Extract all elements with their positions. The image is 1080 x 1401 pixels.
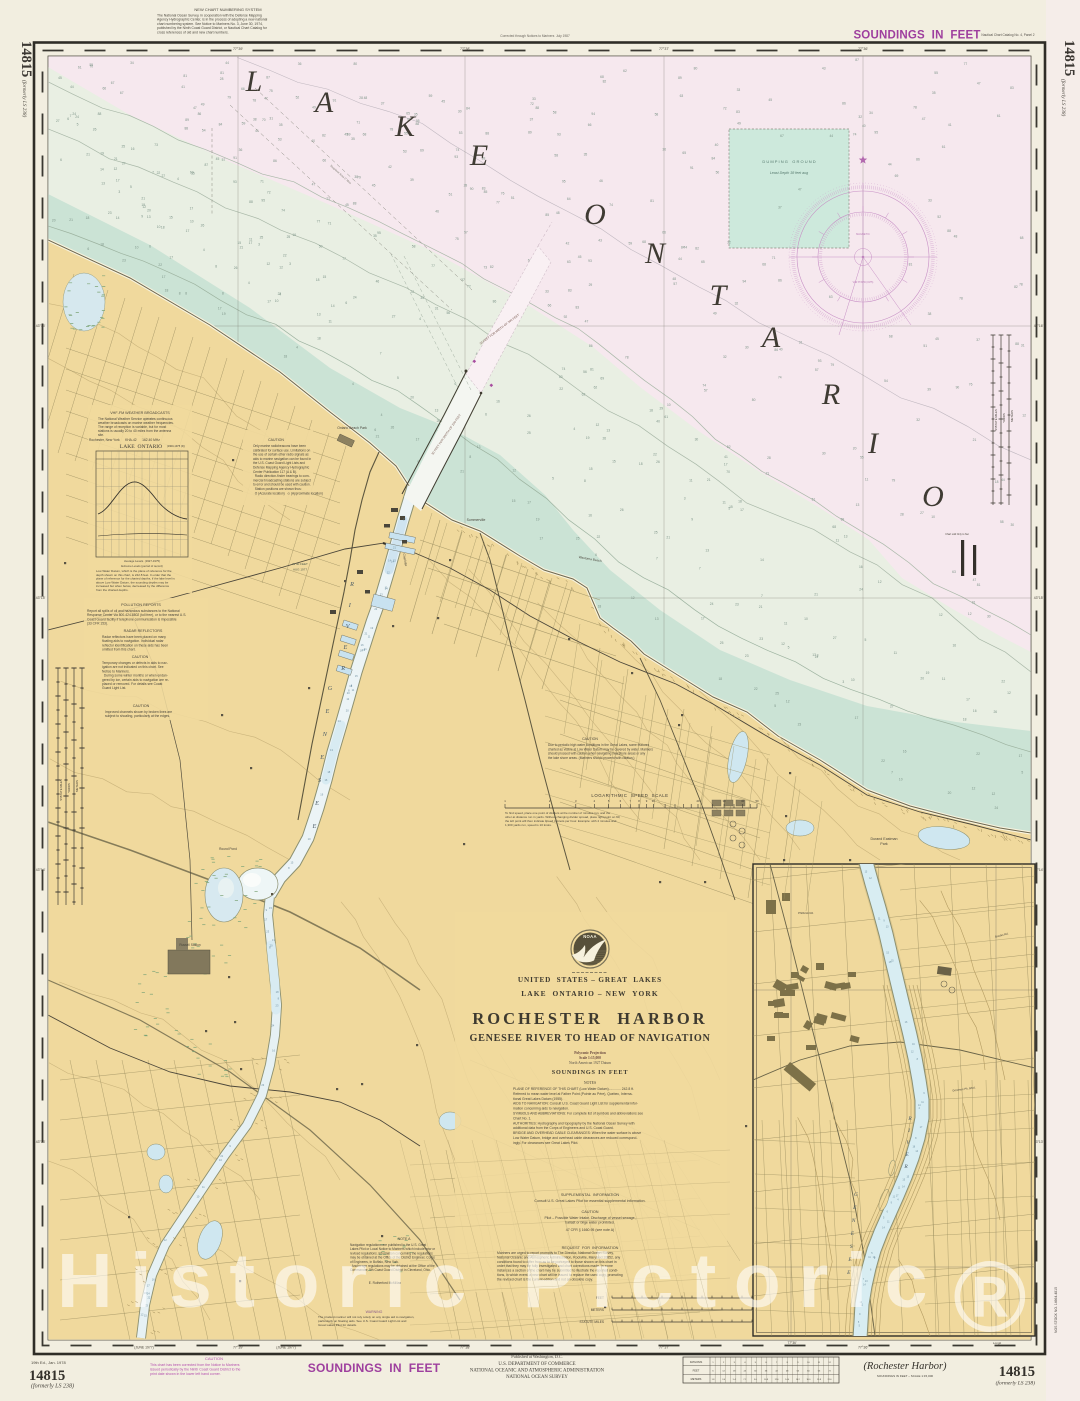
svg-text:43: 43 xyxy=(598,238,602,242)
svg-text:85: 85 xyxy=(545,213,549,217)
svg-text:91: 91 xyxy=(690,166,694,170)
svg-text:44: 44 xyxy=(70,85,74,89)
svg-text:22: 22 xyxy=(283,254,287,258)
svg-text:6: 6 xyxy=(454,382,456,386)
svg-text:88: 88 xyxy=(947,229,951,233)
svg-text:Low Water Datum, bridge and ov: Low Water Datum, bridge and overhead cab… xyxy=(513,1136,637,1140)
svg-text:12: 12 xyxy=(631,596,635,600)
svg-text:74: 74 xyxy=(281,208,285,212)
svg-text:83: 83 xyxy=(568,288,572,292)
svg-text:17: 17 xyxy=(267,299,271,303)
svg-text:68: 68 xyxy=(889,335,893,339)
svg-text:25: 25 xyxy=(260,235,264,239)
svg-text:14815: 14815 xyxy=(29,1368,65,1384)
svg-text:SYMBOLS AND ABBREVIATIONS: For: SYMBOLS AND ABBREVIATIONS: For complete … xyxy=(513,1112,643,1116)
svg-text:76: 76 xyxy=(969,382,973,386)
svg-text:78: 78 xyxy=(913,106,917,110)
svg-text:17: 17 xyxy=(724,462,728,466)
svg-text:44: 44 xyxy=(678,257,682,261)
svg-text:37: 37 xyxy=(530,118,534,122)
svg-text:15: 15 xyxy=(589,467,593,471)
svg-text:94: 94 xyxy=(591,112,595,116)
svg-text:22: 22 xyxy=(653,452,657,456)
svg-text:31: 31 xyxy=(435,307,439,311)
svg-text:87: 87 xyxy=(855,58,859,62)
svg-text:31: 31 xyxy=(1021,343,1025,347)
svg-text:26: 26 xyxy=(602,437,606,441)
svg-text:33: 33 xyxy=(532,97,536,101)
svg-text:27: 27 xyxy=(161,174,165,178)
svg-text:90: 90 xyxy=(956,386,960,390)
svg-text:32: 32 xyxy=(916,418,920,422)
svg-text:11: 11 xyxy=(722,501,726,505)
svg-text:86: 86 xyxy=(589,344,593,348)
svg-text:47: 47 xyxy=(977,82,981,86)
svg-text:18: 18 xyxy=(718,677,722,681)
svg-text:86: 86 xyxy=(778,278,782,282)
svg-text:18: 18 xyxy=(639,462,643,466)
svg-text:issued periodically by the Nin: issued periodically by the Ninth Coast G… xyxy=(150,1367,241,1371)
svg-text:87: 87 xyxy=(266,76,270,80)
svg-text:17: 17 xyxy=(701,617,705,621)
svg-text:26: 26 xyxy=(993,710,997,714)
svg-text:21: 21 xyxy=(141,197,145,201)
svg-text:14: 14 xyxy=(116,216,120,220)
svg-text:E: E xyxy=(852,1205,857,1211)
svg-text:17: 17 xyxy=(416,438,420,442)
svg-text:8: 8 xyxy=(179,291,181,295)
svg-text:U.S. DEPARTMENT OF COMMERCE: U.S. DEPARTMENT OF COMMERCE xyxy=(498,1362,575,1367)
svg-text:35: 35 xyxy=(584,153,588,157)
svg-text:66: 66 xyxy=(241,87,245,91)
svg-text:from the charted depths.: from the charted depths. xyxy=(96,588,129,592)
svg-text:12: 12 xyxy=(992,792,996,796)
svg-text:77°39': 77°39' xyxy=(233,47,243,51)
svg-text:82: 82 xyxy=(322,134,326,138)
svg-text:33: 33 xyxy=(545,290,549,294)
svg-text:ROCHESTER HARBOR: ROCHESTER HARBOR xyxy=(472,1009,707,1028)
svg-text:86: 86 xyxy=(198,112,202,116)
svg-text:24: 24 xyxy=(72,112,76,116)
svg-text:42: 42 xyxy=(388,165,392,169)
svg-text:95: 95 xyxy=(874,130,878,134)
svg-text:63: 63 xyxy=(952,570,956,574)
svg-text:(1900-1975 (F)): (1900-1975 (F)) xyxy=(167,444,185,448)
svg-text:(formerly LS 238): (formerly LS 238) xyxy=(21,80,28,117)
svg-text:84: 84 xyxy=(466,107,470,111)
svg-text:73: 73 xyxy=(483,266,487,270)
svg-text:45: 45 xyxy=(768,98,772,102)
svg-text:16: 16 xyxy=(131,147,135,151)
svg-text:80: 80 xyxy=(752,398,756,402)
svg-text:13: 13 xyxy=(655,617,659,621)
svg-text:17: 17 xyxy=(169,256,173,260)
svg-text:35: 35 xyxy=(932,91,936,95)
svg-text:23: 23 xyxy=(108,211,112,215)
svg-text:6: 6 xyxy=(87,247,89,251)
svg-text:66: 66 xyxy=(102,87,106,91)
svg-text:19: 19 xyxy=(926,671,930,675)
svg-text:18: 18 xyxy=(995,480,999,484)
svg-text:3: 3 xyxy=(817,654,819,658)
svg-text:NOS STOCK NO. 14664-4815: NOS STOCK NO. 14664-4815 xyxy=(1054,1287,1058,1333)
svg-text:74: 74 xyxy=(778,376,782,380)
svg-text:81: 81 xyxy=(650,199,654,203)
svg-text:Consult U.S. Great Lakes Pilot: Consult U.S. Great Lakes Pilot for essen… xyxy=(534,1199,645,1203)
svg-text:MAGNETIC: MAGNETIC xyxy=(856,232,870,236)
svg-text:T: T xyxy=(710,279,729,312)
svg-text:14: 14 xyxy=(331,304,335,308)
svg-text:77°36': 77°36' xyxy=(858,47,868,51)
svg-text:30: 30 xyxy=(1010,523,1014,527)
svg-text:A: A xyxy=(760,321,781,354)
svg-text:83: 83 xyxy=(1010,86,1014,90)
svg-text:6: 6 xyxy=(60,158,62,162)
svg-text:15: 15 xyxy=(169,215,173,219)
svg-text:38: 38 xyxy=(928,312,932,316)
svg-text:78: 78 xyxy=(959,296,963,300)
svg-text:47: 47 xyxy=(798,188,802,192)
svg-text:45: 45 xyxy=(578,255,582,259)
svg-text:Nautical Chart Catalog No. 4,: Nautical Chart Catalog No. 4, Panel 2 xyxy=(981,33,1034,37)
svg-text:28: 28 xyxy=(767,456,771,460)
svg-text:24: 24 xyxy=(353,295,357,299)
svg-text:77: 77 xyxy=(496,200,500,204)
svg-text:28: 28 xyxy=(464,184,468,188)
svg-text:12: 12 xyxy=(279,266,283,270)
svg-text:41: 41 xyxy=(724,455,728,459)
svg-text:28: 28 xyxy=(220,77,224,81)
svg-text:4: 4 xyxy=(573,427,575,431)
svg-text:32: 32 xyxy=(727,240,731,244)
svg-text:18: 18 xyxy=(316,278,320,282)
svg-text:27: 27 xyxy=(392,314,396,318)
svg-text:59: 59 xyxy=(628,242,632,246)
svg-text:58: 58 xyxy=(553,111,557,115)
svg-text:18: 18 xyxy=(100,243,104,247)
svg-text:5: 5 xyxy=(130,185,132,189)
svg-text:4: 4 xyxy=(381,413,383,417)
svg-text:30: 30 xyxy=(723,799,727,803)
svg-text:79: 79 xyxy=(227,96,231,100)
svg-text:68: 68 xyxy=(1020,236,1024,240)
svg-text:25: 25 xyxy=(527,431,531,435)
svg-text:14815: 14815 xyxy=(999,1364,1035,1380)
svg-text:30: 30 xyxy=(695,437,699,441)
svg-text:71: 71 xyxy=(328,222,332,226)
svg-text:75: 75 xyxy=(455,237,459,241)
svg-text:7: 7 xyxy=(891,770,893,774)
svg-text:16: 16 xyxy=(496,400,500,404)
svg-text:12: 12 xyxy=(939,613,943,617)
svg-text:5: 5 xyxy=(77,123,79,127)
svg-text:IN 40 FEET: IN 40 FEET xyxy=(292,562,308,566)
svg-text:77: 77 xyxy=(431,264,435,268)
svg-text:27: 27 xyxy=(122,161,126,165)
svg-text:3: 3 xyxy=(842,680,844,684)
svg-text:E: E xyxy=(312,823,317,830)
svg-text:29: 29 xyxy=(659,406,663,410)
svg-text:AUG 1977: AUG 1977 xyxy=(293,568,307,572)
svg-text:7: 7 xyxy=(699,567,701,571)
svg-text:77°38': 77°38' xyxy=(460,47,470,51)
svg-text:10: 10 xyxy=(667,403,671,407)
svg-text:68: 68 xyxy=(762,262,766,266)
svg-text:12: 12 xyxy=(786,700,790,704)
svg-text:77: 77 xyxy=(317,220,321,224)
svg-text:20: 20 xyxy=(410,396,414,400)
svg-text:69: 69 xyxy=(841,517,845,521)
svg-text:5: 5 xyxy=(864,638,866,642)
svg-text:(33 CFR 153).: (33 CFR 153). xyxy=(87,622,108,626)
svg-text:52: 52 xyxy=(296,95,300,99)
svg-text:25: 25 xyxy=(720,641,724,645)
svg-text:12: 12 xyxy=(266,262,270,266)
svg-text:36: 36 xyxy=(662,147,666,151)
svg-text:Polyconic Projection: Polyconic Projection xyxy=(574,1051,606,1055)
svg-text:74: 74 xyxy=(853,132,857,136)
svg-text:22: 22 xyxy=(597,535,601,539)
svg-text:15: 15 xyxy=(729,505,733,509)
svg-text:17: 17 xyxy=(966,698,970,702)
svg-text:88: 88 xyxy=(353,202,357,206)
svg-text:11: 11 xyxy=(836,539,840,543)
svg-text:58: 58 xyxy=(655,112,659,116)
svg-text:METERS: METERS xyxy=(691,1377,702,1381)
svg-text:21: 21 xyxy=(376,434,380,438)
svg-text:(formerly LS 238): (formerly LS 238) xyxy=(31,1383,74,1390)
svg-text:14: 14 xyxy=(760,558,764,562)
svg-text:72: 72 xyxy=(267,191,271,195)
svg-text:22: 22 xyxy=(158,263,162,267)
svg-text:61: 61 xyxy=(78,66,82,70)
svg-text:N: N xyxy=(851,1218,856,1224)
svg-text:12: 12 xyxy=(512,468,516,472)
svg-text:SOUNDINGS IN FEET: SOUNDINGS IN FEET xyxy=(853,30,980,42)
svg-text:63: 63 xyxy=(829,295,833,299)
svg-text:print date shown in the lower: print date shown in the lower left hand … xyxy=(150,1372,221,1376)
svg-text:Pilot – Possible Water Intake.: Pilot – Possible Water Intake. Discharge… xyxy=(544,1216,635,1220)
svg-text:Corrected through Notices to M: Corrected through Notices to Mariners Ju… xyxy=(500,34,570,38)
svg-text:78: 78 xyxy=(1019,282,1023,286)
svg-text:16: 16 xyxy=(952,643,956,647)
svg-text:13: 13 xyxy=(812,653,816,657)
svg-text:47: 47 xyxy=(973,578,977,582)
svg-text:24: 24 xyxy=(859,588,863,592)
svg-text:46: 46 xyxy=(599,179,603,183)
svg-text:38: 38 xyxy=(354,175,358,179)
svg-text:86: 86 xyxy=(842,102,846,106)
svg-text:9: 9 xyxy=(691,517,693,521)
svg-text:59: 59 xyxy=(242,121,246,125)
svg-text:22: 22 xyxy=(278,292,282,296)
svg-text:37: 37 xyxy=(976,338,980,342)
svg-text:69: 69 xyxy=(600,377,604,381)
svg-text:Russell Station: Russell Station xyxy=(179,943,200,947)
svg-text:24: 24 xyxy=(710,602,714,606)
svg-text:45: 45 xyxy=(345,203,349,207)
svg-text:63: 63 xyxy=(680,94,684,98)
svg-text:95: 95 xyxy=(261,199,265,203)
svg-text:11: 11 xyxy=(865,477,869,481)
svg-text:27: 27 xyxy=(56,119,60,123)
svg-text:43: 43 xyxy=(822,67,826,71)
svg-text:17: 17 xyxy=(1019,754,1023,758)
svg-text:68: 68 xyxy=(363,132,367,136)
svg-text:Average Levels (1927-1975): Average Levels (1927-1975) xyxy=(124,559,160,563)
svg-text:R: R xyxy=(821,378,840,411)
svg-text:E: E xyxy=(325,708,330,715)
svg-text:25: 25 xyxy=(654,531,658,535)
svg-text:88: 88 xyxy=(415,122,419,126)
svg-text:68: 68 xyxy=(600,75,604,79)
svg-text:45: 45 xyxy=(344,132,348,136)
svg-text:83: 83 xyxy=(736,110,740,114)
svg-text:NEW CHART NUMBERING SYSTEM: NEW CHART NUMBERING SYSTEM xyxy=(194,7,261,12)
svg-text:56: 56 xyxy=(583,370,587,374)
svg-text:D U M P I N G G R O U N D: D U M P I N G G R O U N D xyxy=(762,159,815,164)
svg-text:13: 13 xyxy=(606,429,610,433)
svg-text:CAUTION: CAUTION xyxy=(581,1210,598,1214)
svg-text:68: 68 xyxy=(832,525,836,529)
svg-text:8: 8 xyxy=(469,455,471,459)
svg-text:61: 61 xyxy=(664,415,668,419)
svg-text:NATIONAL OCEAN SURVEY: NATIONAL OCEAN SURVEY xyxy=(506,1375,568,1380)
svg-text:10: 10 xyxy=(931,515,935,519)
svg-text:10: 10 xyxy=(851,678,855,682)
svg-text:Park: Park xyxy=(880,842,888,846)
svg-text:69: 69 xyxy=(895,174,899,178)
svg-text:Chart No. 1.: Chart No. 1. xyxy=(513,1116,531,1120)
svg-text:72: 72 xyxy=(530,102,534,106)
svg-text:34: 34 xyxy=(869,111,873,115)
svg-text:35: 35 xyxy=(351,137,355,141)
svg-text:18: 18 xyxy=(165,288,169,292)
svg-text:57: 57 xyxy=(222,158,226,162)
svg-text:93: 93 xyxy=(454,155,458,159)
svg-text:66: 66 xyxy=(548,304,552,308)
svg-text:44: 44 xyxy=(888,163,892,167)
svg-text:7: 7 xyxy=(656,557,658,561)
svg-text:Round Pond: Round Pond xyxy=(219,847,237,851)
svg-text:20: 20 xyxy=(948,791,952,795)
svg-text:87: 87 xyxy=(204,163,208,167)
svg-text:A: A xyxy=(313,86,334,119)
svg-text:Rochester, New York KHA-4: Rochester, New York KHA-42 162.40 MHz xyxy=(89,438,160,442)
svg-text:40: 40 xyxy=(656,420,660,424)
svg-text:LAKE ONTARIO: LAKE ONTARIO xyxy=(120,444,162,450)
svg-text:91: 91 xyxy=(233,156,237,160)
svg-text:8: 8 xyxy=(185,291,187,295)
svg-text:R: R xyxy=(340,665,345,672)
svg-text:17: 17 xyxy=(190,207,194,211)
svg-text:82: 82 xyxy=(603,80,607,84)
svg-text:22: 22 xyxy=(559,387,563,391)
svg-text:55: 55 xyxy=(860,455,864,459)
svg-text:90: 90 xyxy=(470,187,474,191)
svg-text:AUTHORITIES: Hydrography and t: AUTHORITIES: Hydrography and topography … xyxy=(513,1121,635,1125)
svg-text:21: 21 xyxy=(814,592,818,596)
svg-text:56: 56 xyxy=(446,311,450,315)
svg-text:22: 22 xyxy=(881,759,885,763)
svg-text:STATUTE MILES: STATUTE MILES xyxy=(59,779,63,801)
svg-text:FATHOMS: FATHOMS xyxy=(690,1360,703,1364)
svg-text:This chart has been corrected: This chart has been corrected from the N… xyxy=(150,1363,240,1367)
svg-text:17: 17 xyxy=(218,307,222,311)
svg-text:84: 84 xyxy=(219,122,223,126)
svg-text:31: 31 xyxy=(799,341,803,345)
svg-text:SOUNDINGS IN FEET: SOUNDINGS IN FEET xyxy=(552,1069,629,1076)
svg-text:E: E xyxy=(469,139,488,172)
svg-text:19: 19 xyxy=(100,152,104,156)
svg-text:88: 88 xyxy=(184,127,188,131)
svg-text:E: E xyxy=(343,644,348,651)
svg-text:O: O xyxy=(922,480,944,513)
svg-text:15: 15 xyxy=(612,460,616,464)
svg-text:74: 74 xyxy=(562,367,566,371)
svg-text:25: 25 xyxy=(287,235,291,239)
svg-text:4: 4 xyxy=(177,177,179,181)
svg-text:77: 77 xyxy=(342,257,346,261)
svg-text:tional Great Lakes Datum (1955: tional Great Lakes Datum (1955). xyxy=(513,1097,563,1101)
svg-text:22: 22 xyxy=(754,687,758,691)
svg-text:70: 70 xyxy=(262,118,266,122)
svg-text:21: 21 xyxy=(114,157,118,161)
svg-text:43°15': 43°15' xyxy=(1034,596,1044,600)
svg-text:11: 11 xyxy=(942,677,946,681)
svg-text:36: 36 xyxy=(239,148,243,152)
svg-text:11: 11 xyxy=(894,651,898,655)
svg-text:LAKE ONTARIO – NEW YORK: LAKE ONTARIO – NEW YORK xyxy=(521,989,658,998)
svg-text:49: 49 xyxy=(713,312,717,316)
svg-text:67: 67 xyxy=(111,81,115,85)
svg-text:18: 18 xyxy=(161,226,165,230)
svg-text:82: 82 xyxy=(490,265,494,269)
svg-text:33: 33 xyxy=(737,88,741,92)
svg-text:31: 31 xyxy=(269,116,273,120)
svg-text:44: 44 xyxy=(1001,478,1005,482)
svg-text:26: 26 xyxy=(391,426,395,430)
svg-text:76: 76 xyxy=(501,191,505,195)
svg-text:45: 45 xyxy=(216,157,220,161)
svg-text:18: 18 xyxy=(963,718,967,722)
svg-text:21: 21 xyxy=(460,470,464,474)
svg-text:20: 20 xyxy=(853,447,857,451)
svg-text:25: 25 xyxy=(576,537,580,541)
svg-text:49: 49 xyxy=(737,121,741,125)
svg-text:3: 3 xyxy=(118,190,120,194)
svg-text:25: 25 xyxy=(775,692,779,696)
svg-text:35: 35 xyxy=(191,171,195,175)
svg-text:16: 16 xyxy=(588,513,592,517)
svg-text:12: 12 xyxy=(968,612,972,616)
svg-text:12: 12 xyxy=(878,580,882,584)
svg-text:30: 30 xyxy=(458,109,462,113)
svg-text:27: 27 xyxy=(890,705,894,709)
svg-text:SOUNDINGS IN FEET – SCALE 1:15: SOUNDINGS IN FEET – SCALE 1:15,000 xyxy=(877,1374,933,1378)
svg-text:22: 22 xyxy=(976,752,980,756)
svg-text:50: 50 xyxy=(716,171,720,175)
svg-text:17: 17 xyxy=(186,229,190,233)
svg-text:10: 10 xyxy=(899,777,903,781)
svg-text:17: 17 xyxy=(855,716,859,720)
svg-text:6: 6 xyxy=(374,428,376,432)
svg-text:81: 81 xyxy=(590,368,594,372)
svg-text:47: 47 xyxy=(585,320,589,324)
svg-text:mation concerning aids to navi: mation concerning aids to navigation. xyxy=(513,1107,569,1111)
svg-text:88: 88 xyxy=(535,106,539,110)
svg-text:4: 4 xyxy=(203,248,205,252)
